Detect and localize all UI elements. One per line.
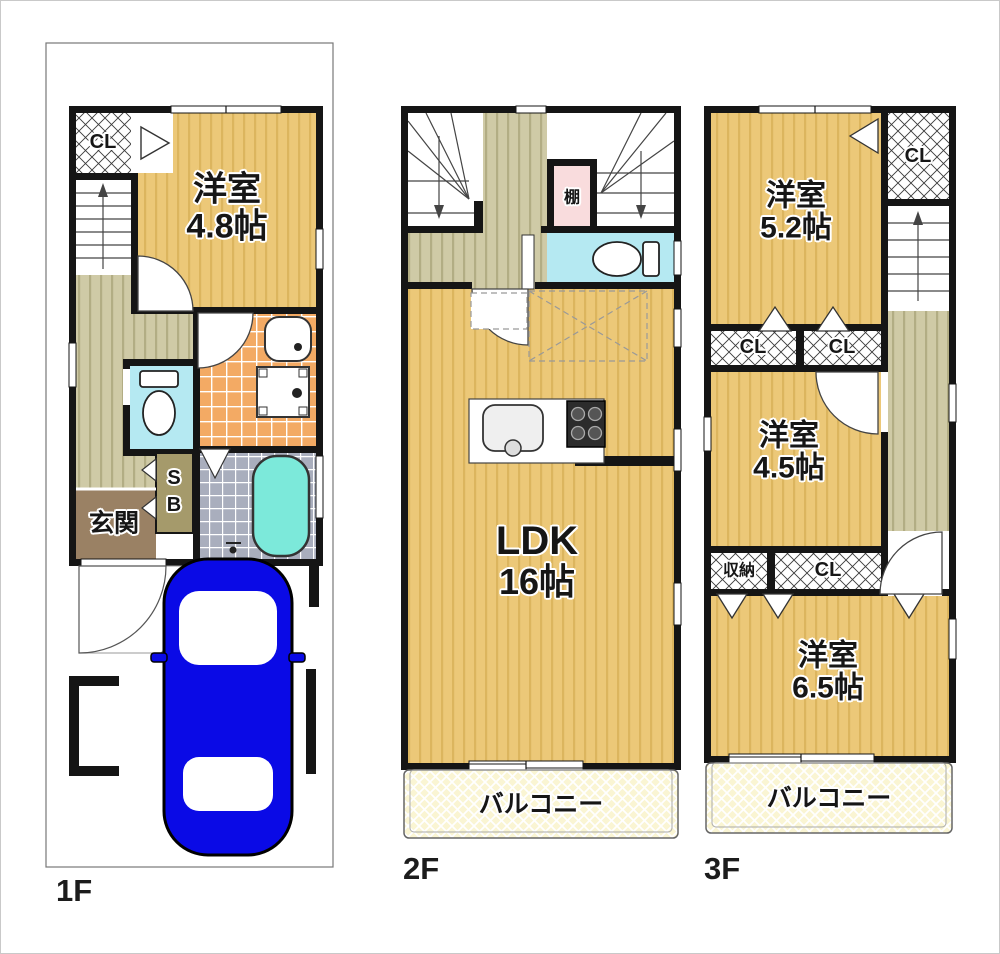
bedroom-name-1f: 洋室	[186, 171, 267, 208]
stairs-2f-right	[597, 113, 674, 226]
bedroom2-label: 洋室 4.5帖	[753, 421, 825, 486]
washbasin-icon	[265, 317, 311, 361]
ldk-label: LDK 16帖	[496, 520, 578, 602]
bedroom1-label: 洋室 5.2帖	[760, 181, 832, 246]
stairs-2f-left	[408, 113, 474, 226]
shoebox-label-b: B	[167, 495, 181, 517]
floor3-tag: 3F	[704, 851, 740, 887]
floor1-plan	[46, 43, 333, 867]
balcony-label-3f: バルコニー	[767, 786, 892, 813]
toilet-icon	[140, 371, 178, 387]
toilet-room-1f	[123, 366, 193, 449]
toilet-icon-2f	[643, 242, 659, 276]
storage-label: 収納	[723, 562, 755, 579]
bedroom3-name: 洋室	[792, 641, 864, 673]
washing-machine-icon	[257, 367, 309, 417]
bedroom2-name: 洋室	[753, 421, 825, 453]
stove-icon	[567, 401, 605, 447]
entrance-label: 玄関	[89, 511, 139, 538]
floor1-tag: 1F	[56, 873, 92, 909]
closet-mid-left-label: CL	[740, 337, 767, 359]
stairs-3f	[888, 206, 949, 311]
bedroom3-size: 6.5帖	[792, 673, 864, 705]
closet-label-1f: CL	[90, 132, 117, 154]
closet-mid-right-label: CL	[829, 337, 856, 359]
bedroom-size-1f: 4.8帖	[186, 208, 267, 245]
closet-bottom-label: CL	[815, 560, 842, 582]
ldk-size: 16帖	[496, 563, 578, 602]
shoebox-label-s: S	[167, 468, 180, 490]
floor2-tag: 2F	[403, 851, 439, 887]
floorplan-image: CL 洋室 4.8帖 S B 玄関 1F 棚 LDK 16帖 バルコニー 2F …	[0, 0, 1000, 954]
closet-top-label: CL	[905, 146, 932, 168]
bedroom-label-1f: 洋室 4.8帖	[186, 171, 267, 244]
balcony-label-2f: バルコニー	[479, 792, 604, 819]
shelf-label: 棚	[564, 189, 580, 206]
toilet-room-2f	[547, 233, 674, 282]
kitchen-counter	[469, 399, 605, 463]
bedroom2-size: 4.5帖	[753, 453, 825, 485]
bedroom1-name: 洋室	[760, 181, 832, 213]
floor2-plan	[401, 106, 681, 838]
ldk-name: LDK	[496, 520, 578, 563]
bedroom3-label: 洋室 6.5帖	[792, 641, 864, 706]
stairs-1f	[76, 180, 131, 275]
bedroom1-size: 5.2帖	[760, 213, 832, 245]
car-icon	[151, 559, 305, 855]
